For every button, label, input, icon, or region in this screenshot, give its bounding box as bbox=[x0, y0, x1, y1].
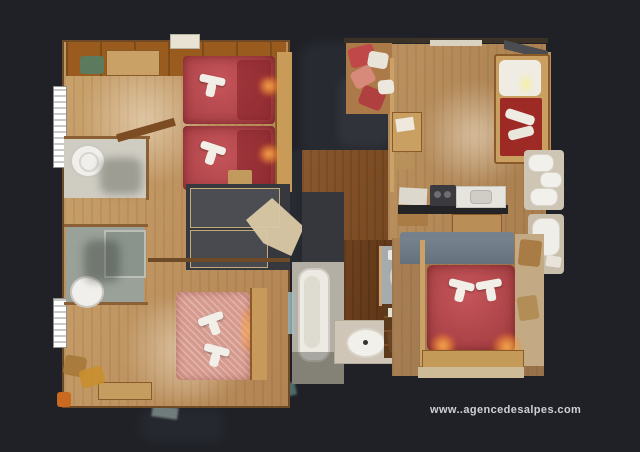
towel-folded bbox=[545, 255, 561, 268]
dining-table-overlap bbox=[400, 238, 514, 264]
chair bbox=[516, 295, 539, 322]
stove-burner bbox=[444, 191, 451, 198]
right-unit bbox=[0, 0, 640, 452]
footer-band bbox=[418, 367, 524, 378]
textile bbox=[377, 79, 394, 94]
stool bbox=[394, 153, 414, 169]
stove-burner bbox=[434, 191, 441, 198]
kitchen-counter-white bbox=[399, 187, 428, 205]
towel-stem bbox=[485, 286, 496, 301]
kitchen-sink bbox=[470, 190, 492, 204]
sink-icon bbox=[540, 172, 562, 188]
towel-stem bbox=[454, 287, 466, 303]
sink-icon bbox=[528, 154, 554, 172]
chair bbox=[518, 239, 543, 267]
kitchen-shelf bbox=[398, 214, 428, 226]
papers bbox=[395, 117, 415, 132]
floorplan-screenshot: www..agencedesalpes.com bbox=[0, 0, 640, 452]
wall bbox=[420, 240, 425, 366]
lamp-glow-icon bbox=[520, 70, 532, 98]
wall-light-band bbox=[430, 40, 482, 46]
sink-icon bbox=[530, 188, 558, 206]
watermark-url: www..agencedesalpes.com bbox=[430, 404, 610, 416]
